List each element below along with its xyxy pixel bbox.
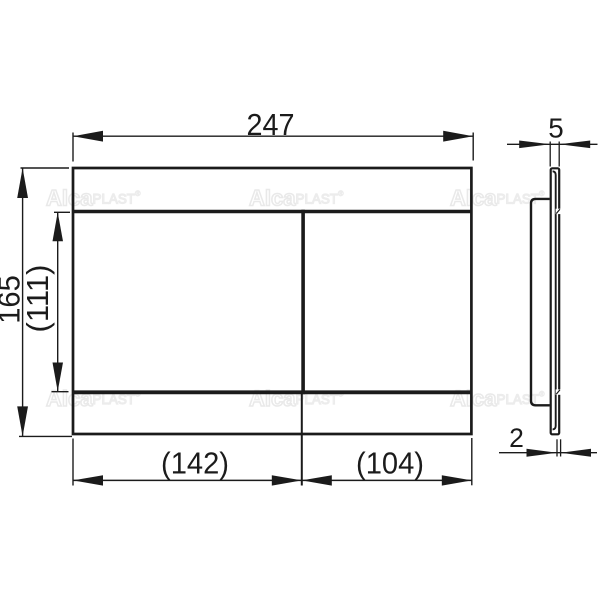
svg-text:®: ® <box>338 189 344 198</box>
svg-text:PLAST: PLAST <box>296 191 339 207</box>
svg-text:Alca: Alca <box>249 386 296 411</box>
svg-text:®: ® <box>135 189 141 198</box>
svg-text:2: 2 <box>509 423 524 453</box>
svg-text:247: 247 <box>247 107 295 142</box>
svg-text:(104): (104) <box>356 445 424 480</box>
svg-text:PLAST: PLAST <box>93 191 136 207</box>
svg-text:Alca: Alca <box>46 386 93 411</box>
svg-text:(111): (111) <box>20 265 55 333</box>
svg-text:Alca: Alca <box>249 186 296 211</box>
svg-text:®: ® <box>539 389 545 398</box>
svg-text:(142): (142) <box>161 445 229 480</box>
svg-text:Alca: Alca <box>46 186 93 211</box>
svg-text:5: 5 <box>548 113 563 144</box>
svg-text:Alca: Alca <box>450 186 497 211</box>
svg-text:®: ® <box>539 189 545 198</box>
svg-text:Alca: Alca <box>450 386 497 411</box>
